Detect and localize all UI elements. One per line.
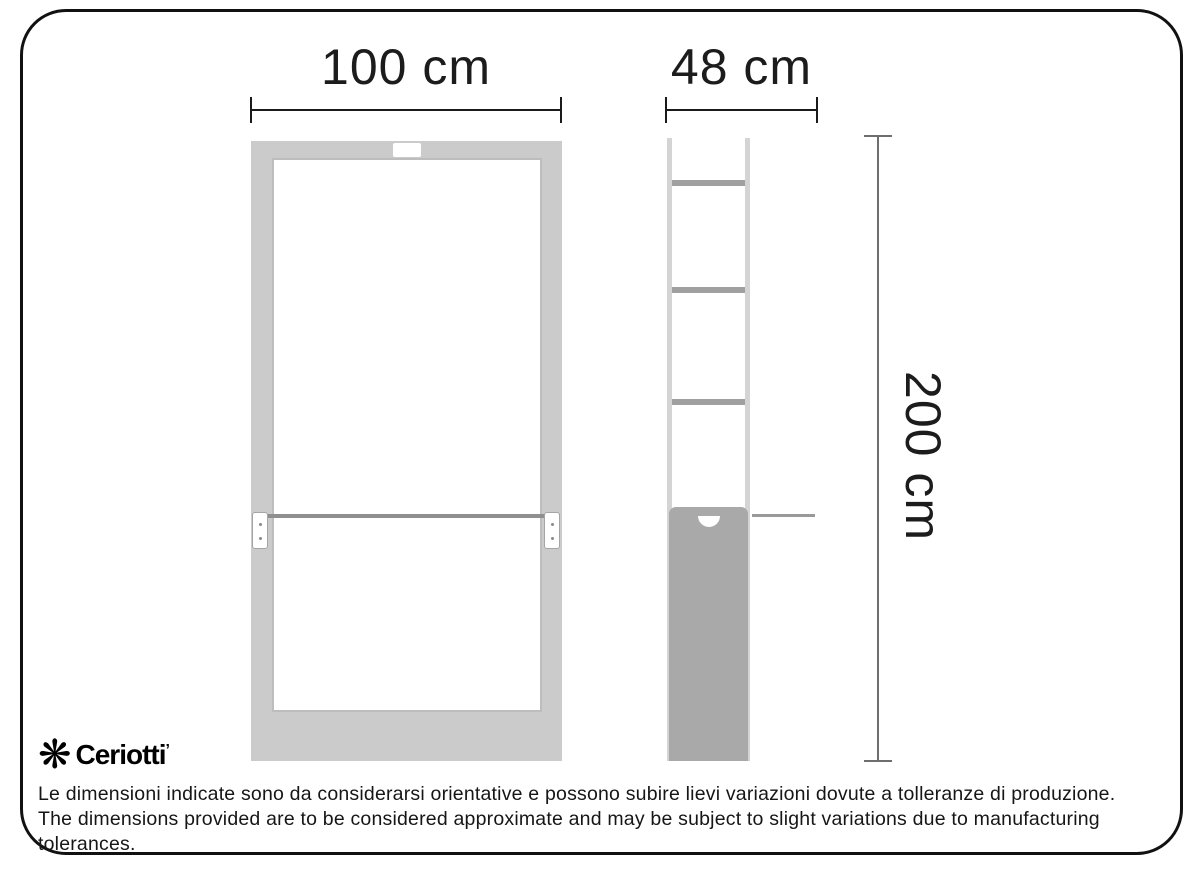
height-dimension-line bbox=[877, 136, 879, 761]
disclaimer-line-italian: Le dimensioni indicate sono da considera… bbox=[38, 782, 1158, 807]
depth-dimension-tick-left bbox=[665, 97, 667, 123]
width-dimension-label: 100 cm bbox=[250, 38, 562, 96]
height-dimension-tick-bottom bbox=[864, 760, 892, 762]
depth-dimension-label: 48 cm bbox=[665, 38, 818, 96]
front-view-frame bbox=[251, 141, 562, 761]
brand-logo: ❋ Ceriotti ʼ bbox=[38, 735, 169, 775]
side-view-shelf-line bbox=[752, 514, 815, 517]
screw-hole bbox=[259, 537, 262, 540]
disclaimer-text: Le dimensioni indicate sono da considera… bbox=[38, 782, 1158, 857]
side-view-crossbar-1 bbox=[672, 180, 745, 186]
depth-dimension-tick-right bbox=[816, 97, 818, 123]
screw-hole bbox=[551, 537, 554, 540]
width-dimension-line bbox=[250, 109, 562, 111]
screw-hole bbox=[259, 523, 262, 526]
side-view-panel-notch bbox=[698, 516, 720, 527]
front-view-shelf-line bbox=[253, 514, 560, 518]
pinwheel-asterisk-icon: ❋ bbox=[38, 735, 72, 775]
side-view-crossbar-3 bbox=[672, 399, 745, 405]
side-view-lower-panel bbox=[669, 507, 748, 761]
screw-hole bbox=[551, 523, 554, 526]
sheet-rounded-border bbox=[20, 9, 1183, 855]
brand-trademark-mark: ʼ bbox=[166, 742, 169, 760]
dimension-diagram-page: 100 cm 48 cm 200 cm bbox=[0, 0, 1200, 874]
depth-dimension-line bbox=[665, 109, 818, 111]
disclaimer-line-english: The dimensions provided are to be consid… bbox=[38, 807, 1158, 857]
height-dimension-tick-top bbox=[864, 135, 892, 137]
side-view-crossbar-2 bbox=[672, 287, 745, 293]
height-dimension-label: 200 cm bbox=[900, 370, 952, 542]
width-dimension-tick-left bbox=[250, 97, 252, 123]
width-dimension-tick-right bbox=[560, 97, 562, 123]
brand-name: Ceriotti bbox=[76, 739, 166, 771]
front-view-top-notch bbox=[393, 143, 421, 157]
front-view-right-mount-plate bbox=[544, 512, 560, 549]
front-view-mirror-panel bbox=[272, 158, 542, 712]
front-view-left-mount-plate bbox=[252, 512, 268, 549]
